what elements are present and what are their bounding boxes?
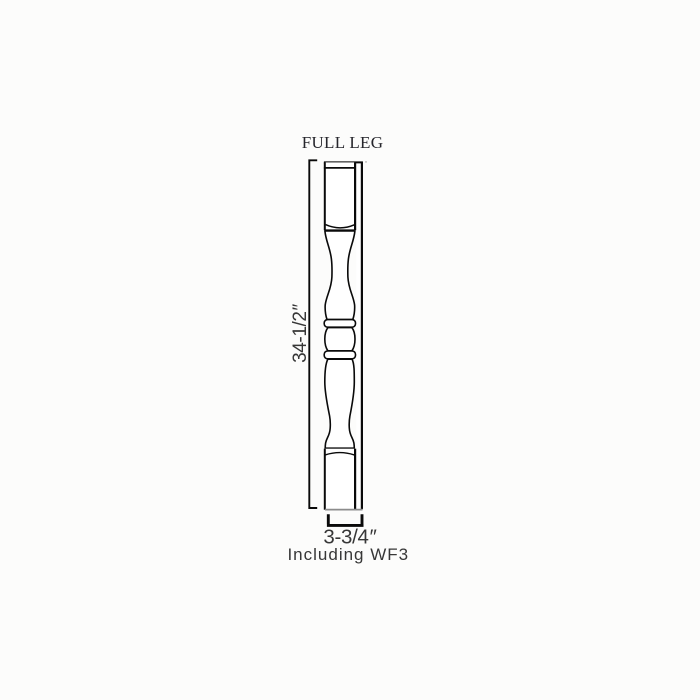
svg-text:FULL LEG: FULL LEG — [302, 133, 384, 152]
svg-text:Including WF3: Including WF3 — [287, 545, 409, 564]
svg-text:34-1/2″: 34-1/2″ — [290, 303, 311, 362]
